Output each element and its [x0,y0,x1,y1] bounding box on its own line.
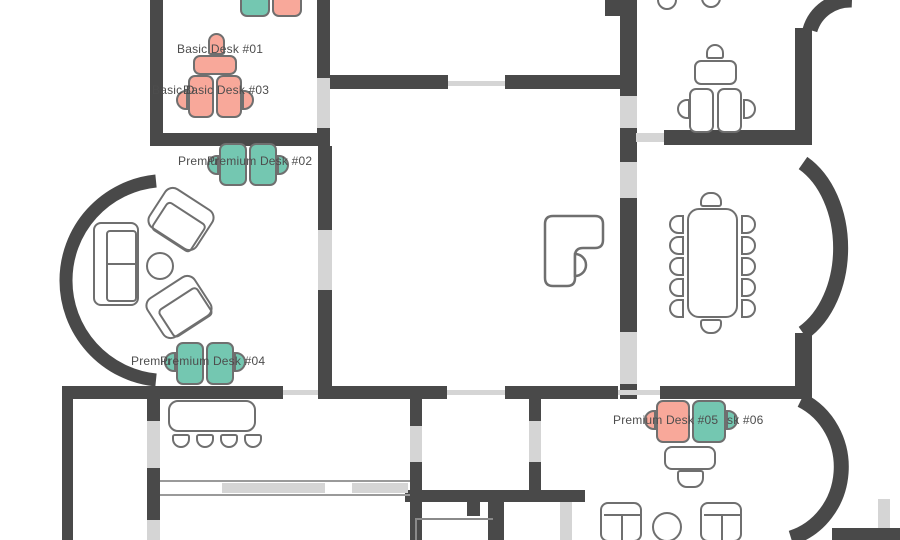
wall-segment [150,0,163,146]
desk-label: Basic Desk #01 [177,43,263,56]
wall-segment [467,502,480,516]
wall-segment [318,290,332,386]
window-segment [147,520,160,540]
door-opening [447,390,505,395]
wall-segment [605,0,621,16]
conference-chair [669,278,684,297]
window-segment [352,483,408,493]
desk-chair [575,254,586,276]
window-segment [317,78,330,128]
wall-segment [620,198,637,332]
curved-wall-meeting-alcove [803,163,841,333]
coffee-table [652,512,682,540]
desk-occupied[interactable] [272,0,302,17]
door-opening [618,390,660,395]
armchair [600,502,642,540]
sofa [93,222,139,306]
curved-wall-bottom-right [791,400,841,538]
conference-chair [669,236,684,255]
wall-segment [529,462,541,490]
desk-label: Basic Desk #03 [183,84,269,97]
window-segment [620,332,637,384]
f-shaped-desk [545,216,603,286]
coffee-table [146,252,174,280]
conference-chair [669,257,684,276]
wall-segment [832,528,900,540]
wall-segment [505,386,618,399]
conference-table [687,208,738,318]
window-segment [222,483,325,493]
desk-white [717,88,742,133]
window-segment [878,499,890,528]
wall-segment [147,468,160,520]
window-segment [620,162,637,198]
desk-white [664,446,716,470]
desk-available[interactable] [240,0,270,17]
conference-chair [669,299,684,318]
wall-segment [660,386,801,399]
wall-segment [62,386,73,540]
desk-basic-01[interactable] [193,55,237,75]
desk-chair [677,99,690,119]
bar-table [168,400,256,432]
armchair [700,502,742,540]
partition-line [160,494,410,496]
wall-segment [505,75,620,89]
wall-segment [529,399,541,421]
armchair-divider [721,516,723,540]
wall-segment [318,386,447,399]
partition-line [160,480,410,482]
door-opening [283,390,318,395]
wall-segment [620,130,636,145]
desk-label: Premium Desk #05 [613,414,718,427]
window-segment [560,502,572,540]
window-segment [529,421,541,462]
curved-wall-top-right [810,0,852,30]
wall-segment [620,0,637,96]
door-opening [448,81,505,86]
armchair-divider [621,516,623,540]
door-opening [636,133,664,142]
wall-segment [410,399,422,426]
desk-white [689,88,714,133]
floor-plan-canvas: Basic D Basic Desk # Basic Desk #01 Basi… [0,0,900,540]
sofa-cushion [106,230,137,302]
desk-label-fragment: Basic Desk # [228,0,300,2]
sofa-cushion-divider [106,263,135,265]
wall-segment [330,75,448,89]
wall-segment [317,128,330,146]
wall-segment [405,490,585,502]
wall-segment [317,0,330,78]
wall-segment [795,28,812,132]
conference-chair [700,192,722,207]
desk-chair [706,44,724,59]
desk-chair [677,470,704,488]
window-segment [620,96,637,128]
partition-corner [415,518,493,540]
wall-segment [147,399,160,421]
window-segment [410,426,422,462]
conference-chair [669,215,684,234]
desk-white [694,60,737,85]
desk-label: Premium Desk #04 [160,355,265,368]
desk-label-fragment: sk #06 [727,414,764,427]
window-segment [318,230,332,290]
desk-label: Premium Desk #02 [207,155,312,168]
window-segment [147,421,160,468]
wall-segment [318,146,332,230]
wall-segment [62,386,283,399]
